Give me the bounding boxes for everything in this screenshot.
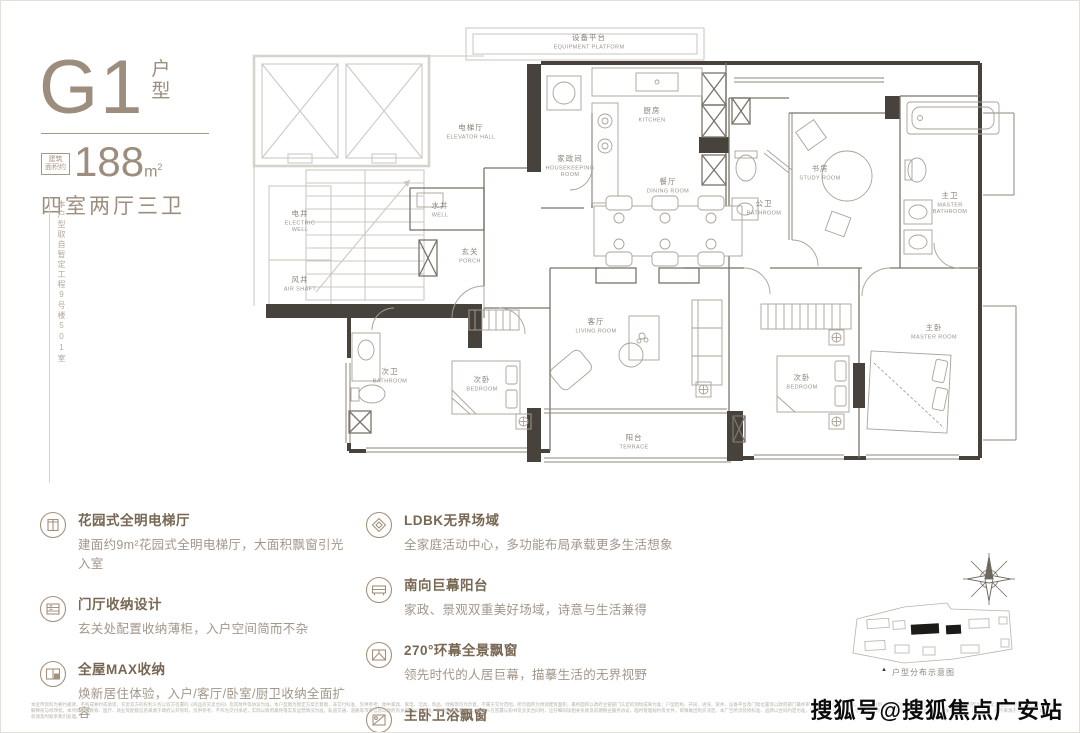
layout-text: 四室两厅三卫 bbox=[41, 190, 239, 220]
area-unit-sup: 2 bbox=[157, 162, 162, 172]
feature-item: 门厅收纳设计玄关处配置收纳薄柜，入户空间简而不杂 bbox=[39, 593, 351, 637]
feature-title: 270°环幕全景飘窗 bbox=[404, 639, 647, 659]
area-tag: 建筑 面积约 bbox=[41, 153, 70, 175]
area-unit: m2 bbox=[144, 159, 162, 180]
room-label-master-bathroom: 主卫MASTERBATHROOM bbox=[933, 190, 968, 215]
floorplan-svg: 设备平台EQUIPMENT PLATFORM电梯厅ELEVATOR HALL厨房… bbox=[244, 18, 1034, 480]
electric-well-box bbox=[269, 186, 331, 312]
header-divider bbox=[41, 133, 209, 134]
unit-suffix-2: 型 bbox=[151, 81, 170, 103]
feature-desc: 增加空间通透感，创新设计与实用功能的完美融合 bbox=[404, 729, 677, 733]
feature-desc: 家政、景观双重美好场域，诗意与生活兼得 bbox=[404, 599, 647, 618]
feature-column-right: LDBK无界场域全家庭活动中心，多功能布局承载更多生活想象南向巨幕阳台家政、景观… bbox=[365, 509, 677, 733]
room-label-air-shaft: 风井AIR SHAFT bbox=[284, 274, 317, 293]
room-label-housekeeping-room: 家政间HOUSEKEEPINGROOM bbox=[546, 153, 595, 178]
room-label-second-bathroom: 次卫BATHROOM bbox=[373, 366, 408, 385]
furniture bbox=[351, 68, 999, 433]
room-label-dining-room: 餐厅DINING ROOM bbox=[647, 177, 689, 195]
room-label-living-room: 客厅LIVING ROOM bbox=[575, 316, 616, 335]
room-label-elevator-hall: 电梯厅ELEVATOR HALL bbox=[447, 122, 496, 141]
core-south-wall bbox=[266, 304, 482, 348]
feature-title: 门厅收纳设计 bbox=[78, 593, 308, 613]
sitemap bbox=[849, 597, 1019, 672]
feature-title: 全屋MAX收纳 bbox=[78, 658, 351, 678]
feature-column-left: 花园式全明电梯厅建面约9m²花园式全明电梯厅，大面积飘窗引光入室门厅收纳设计玄关… bbox=[39, 509, 351, 733]
feature-title: 花园式全明电梯厅 bbox=[78, 509, 351, 529]
room-label-terrace: 阳台TERRACE bbox=[619, 432, 648, 451]
area-tag-line2: 面积约 bbox=[45, 164, 66, 171]
room-label-porch: 玄关PORCH bbox=[459, 246, 481, 265]
room-label-well: 水井WELL bbox=[432, 200, 449, 219]
feature-desc: 建面约9m²花园式全明电梯厅，大面积飘窗引光入室 bbox=[78, 534, 351, 572]
side-note-line bbox=[49, 197, 50, 483]
feature-desc: 全家庭活动中心，多功能布局承载更多生活想象 bbox=[404, 534, 673, 553]
feature-title: LDBK无界场域 bbox=[404, 509, 673, 529]
sitemap-caption: ▲户型分布示意图 bbox=[881, 667, 1071, 678]
storage-icon bbox=[39, 660, 67, 688]
elevator-hall-icon bbox=[39, 511, 67, 539]
feature-desc: 领先时代的人居巨幕，描摹生活的无界视野 bbox=[404, 664, 647, 683]
area-tag-line1: 建筑 bbox=[49, 156, 63, 163]
watermark-text: 搜狐号@搜狐焦点广安站 bbox=[811, 693, 1063, 725]
room-label-electric-well: 电井ELECTRICWELL bbox=[285, 208, 315, 233]
feature-item: LDBK无界场域全家庭活动中心，多功能布局承载更多生活想象 bbox=[365, 509, 677, 553]
room-label-public-bathroom: 公卫BATHROOM bbox=[747, 199, 782, 217]
feature-desc: 玄关处配置收纳薄柜，入户空间简而不杂 bbox=[78, 618, 308, 637]
unit-suffix-1: 户 bbox=[151, 59, 170, 81]
side-note: 本户型取自暂定工程9号楼501室 bbox=[56, 200, 67, 460]
feature-list: 花园式全明电梯厅建面约9m²花园式全明电梯厅，大面积飘窗引光入室门厅收纳设计玄关… bbox=[39, 509, 699, 733]
unit-header: G1 户 型 建筑 面积约 188 m2 四室两厅三卫 bbox=[39, 53, 239, 220]
feature-item: 270°环幕全景飘窗领先时代的人居巨幕，描摹生活的无界视野 bbox=[365, 639, 677, 683]
highlighted-buildings bbox=[911, 623, 961, 634]
feature-title: 南向巨幕阳台 bbox=[404, 574, 647, 594]
sitemap-caption-text: 户型分布示意图 bbox=[892, 668, 955, 677]
sitemap-marker-icon: ▲ bbox=[881, 667, 888, 673]
area-value: 188 bbox=[74, 142, 144, 182]
foyer-cabinet-icon bbox=[39, 595, 67, 623]
staircase bbox=[306, 170, 424, 300]
ldbk-icon bbox=[365, 511, 393, 539]
bay-window-icon bbox=[365, 641, 393, 669]
room-label-study-room: 书房STUDY ROOM bbox=[799, 163, 840, 182]
feature-item: 南向巨幕阳台家政、景观双重美好场域，诗意与生活兼得 bbox=[365, 574, 677, 618]
floorplan: 设备平台EQUIPMENT PLATFORM电梯厅ELEVATOR HALL厨房… bbox=[244, 18, 1034, 485]
room-label-master-room: 主卧MASTER ROOM bbox=[911, 322, 957, 341]
area-unit-base: m bbox=[144, 163, 157, 180]
unit-suffix: 户 型 bbox=[151, 59, 170, 103]
balcony-icon bbox=[365, 576, 393, 604]
floorplan-page: G1 户 型 建筑 面积约 188 m2 四室两厅三卫 本户型取自暂定工程9号楼… bbox=[0, 0, 1080, 733]
unit-code: G1 bbox=[39, 53, 144, 123]
elevator-core bbox=[254, 56, 484, 306]
feature-item: 花园式全明电梯厅建面约9m²花园式全明电梯厅，大面积飘窗引光入室 bbox=[39, 509, 351, 572]
room-label-equipment-platform: 设备平台EQUIPMENT PLATFORM bbox=[554, 32, 625, 51]
room-label-kitchen: 厨房KITCHEN bbox=[639, 105, 666, 124]
